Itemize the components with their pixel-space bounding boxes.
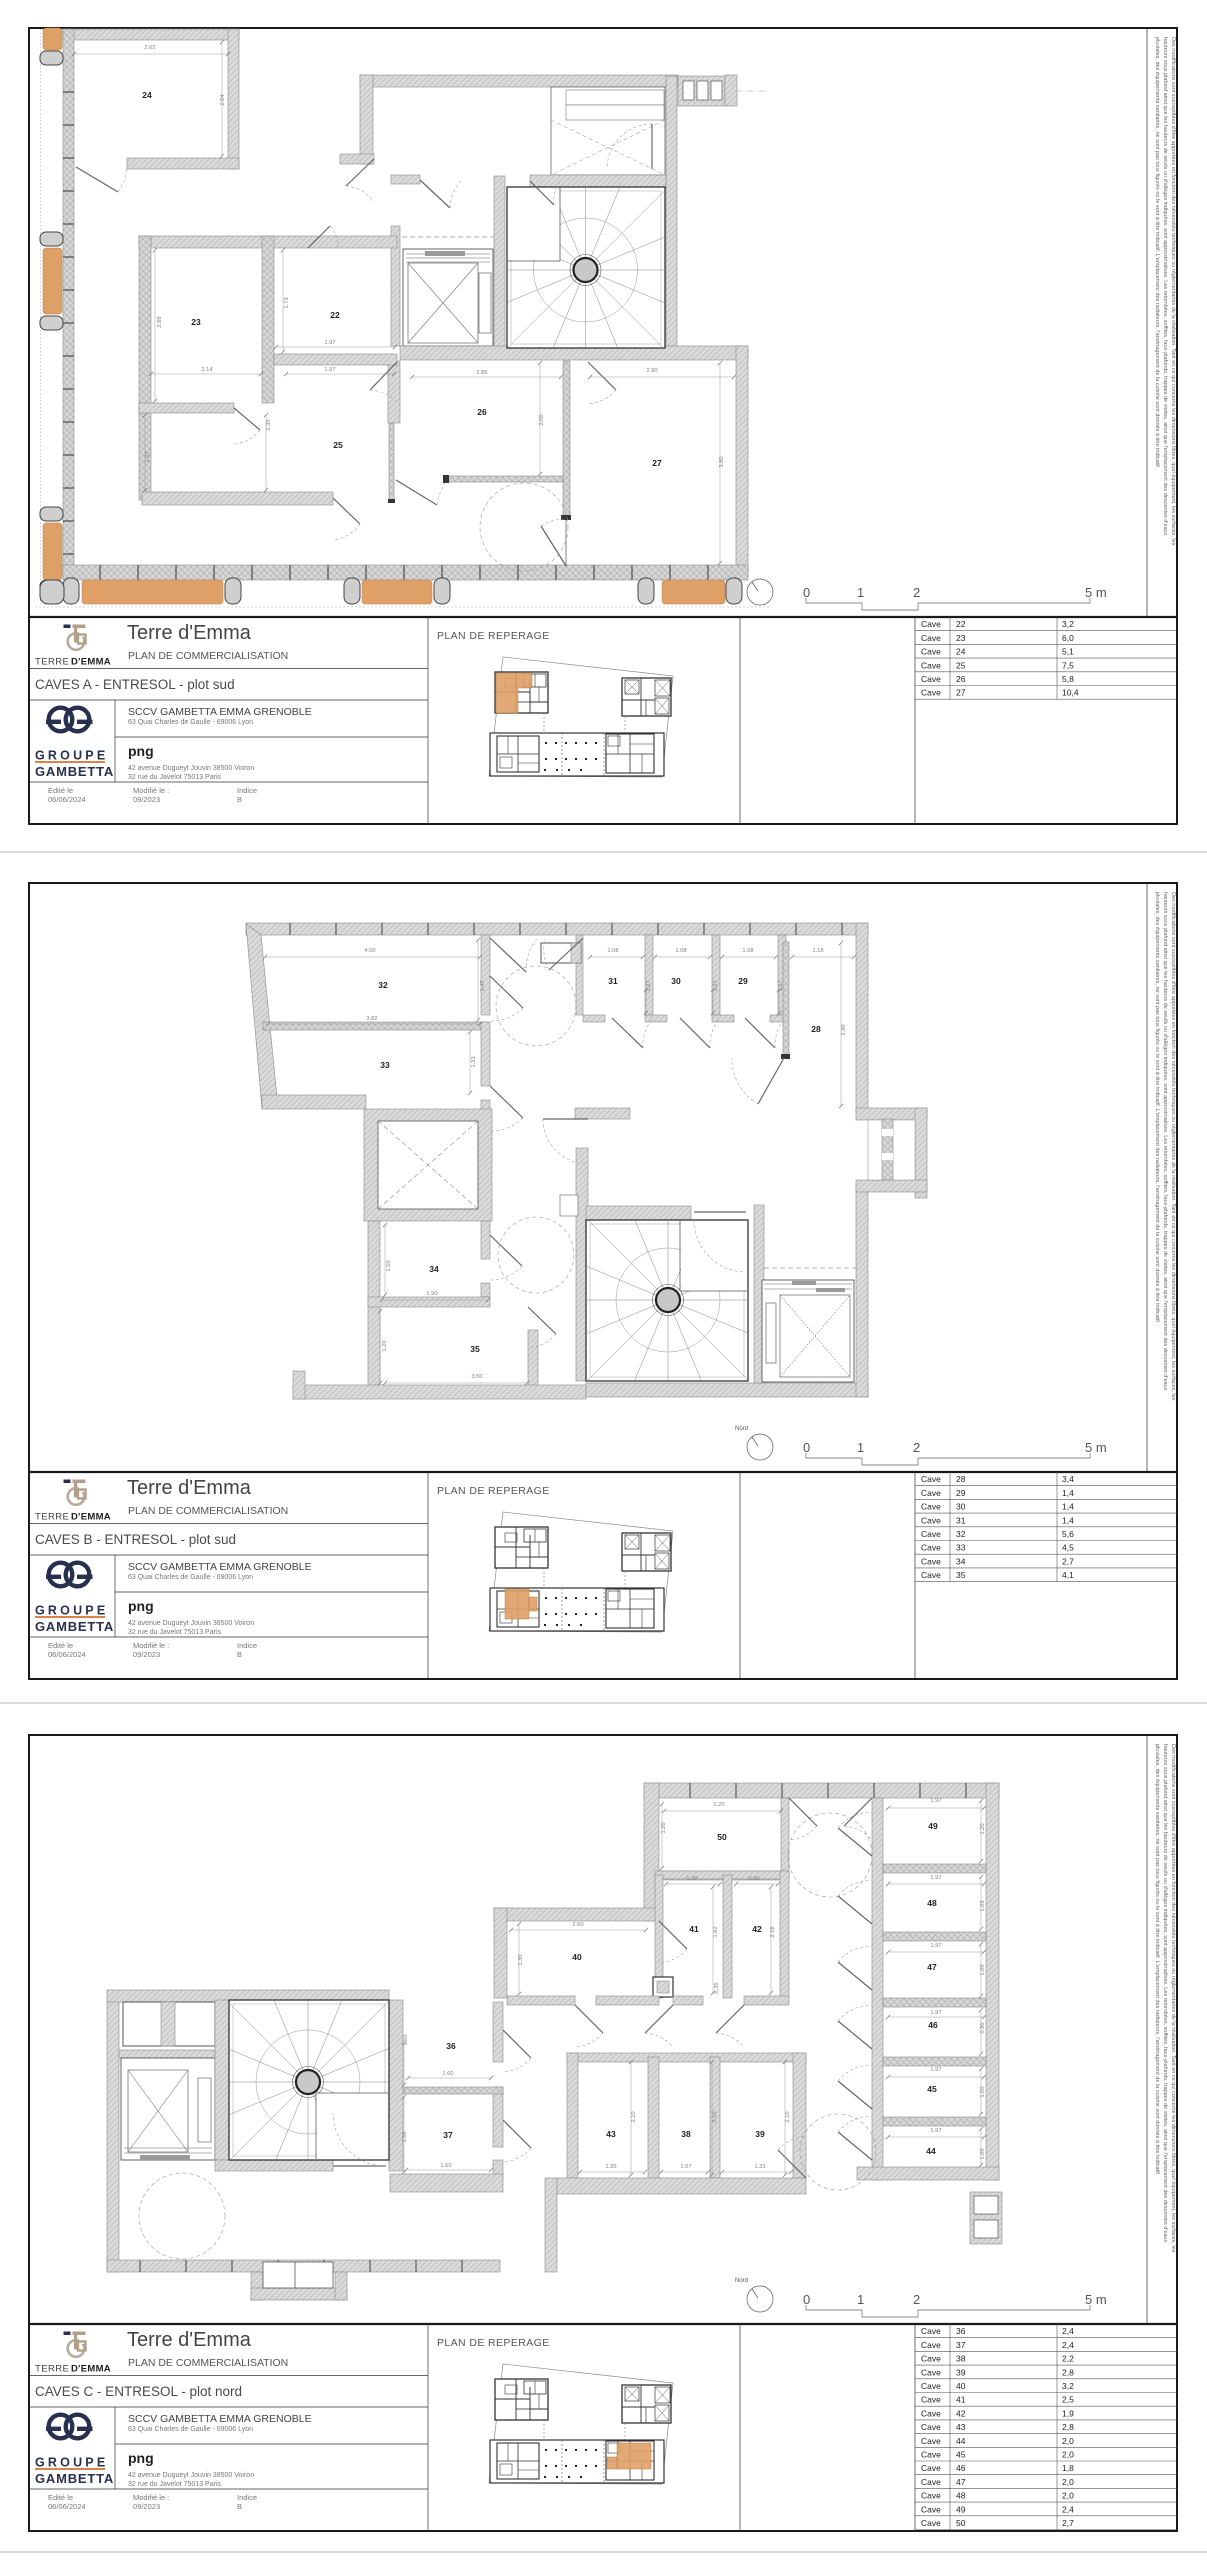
svg-text:5,1: 5,1: [1062, 647, 1074, 657]
svg-text:1.27: 1.27: [778, 980, 784, 991]
svg-text:31: 31: [956, 1515, 966, 1525]
svg-text:5,8: 5,8: [1062, 674, 1074, 684]
svg-text:GAMBETTA: GAMBETTA: [35, 1619, 114, 1634]
svg-text:27: 27: [652, 458, 662, 468]
svg-text:GROUPE: GROUPE: [35, 2456, 108, 2470]
svg-text:GROUPE: GROUPE: [35, 749, 108, 763]
svg-text:pluviales, des équipements san: pluviales, des équipements sanitaires, n…: [1154, 1744, 1160, 2176]
svg-text:5 m: 5 m: [1085, 2292, 1107, 2307]
svg-text:6,0: 6,0: [1062, 633, 1074, 643]
svg-text:1,8: 1,8: [1062, 2463, 1074, 2473]
svg-text:38: 38: [956, 2354, 966, 2364]
svg-text:Cave: Cave: [921, 2367, 941, 2377]
svg-text:0.35: 0.35: [714, 1982, 720, 1993]
svg-text:D'EMMA: D'EMMA: [71, 1512, 111, 1523]
svg-text:png: png: [128, 1598, 154, 1614]
svg-text:29: 29: [738, 976, 748, 986]
svg-text:5 m: 5 m: [1085, 585, 1107, 600]
svg-text:hauteurs sous plafond ainsi qu: hauteurs sous plafond ainsi que les haut…: [1162, 892, 1168, 1391]
svg-text:1.97: 1.97: [930, 2067, 941, 2073]
svg-text:pluviales, des équipements san: pluviales, des équipements sanitaires, n…: [1154, 37, 1160, 469]
svg-text:50: 50: [717, 1832, 727, 1842]
svg-text:24: 24: [956, 647, 966, 657]
svg-text:1.20: 1.20: [382, 1340, 388, 1351]
svg-text:4,1: 4,1: [1062, 1570, 1074, 1580]
svg-text:Cave: Cave: [921, 2504, 941, 2514]
svg-text:33: 33: [956, 1543, 966, 1553]
svg-text:png: png: [128, 2450, 154, 2466]
svg-text:Cave: Cave: [921, 688, 941, 698]
svg-text:1.97: 1.97: [930, 2010, 941, 2016]
svg-text:2,4: 2,4: [1062, 2504, 1074, 2514]
svg-text:B: B: [237, 1650, 242, 1659]
svg-text:PLAN DE REPERAGE: PLAN DE REPERAGE: [437, 1485, 550, 1497]
svg-text:2.10: 2.10: [712, 2111, 718, 2122]
svg-text:TERRE: TERRE: [35, 657, 69, 668]
svg-text:Cave: Cave: [921, 1488, 941, 1498]
svg-text:1.27: 1.27: [145, 451, 151, 462]
svg-text:1.50: 1.50: [403, 2034, 409, 2045]
svg-text:49: 49: [928, 1821, 938, 1831]
svg-text:0.90: 0.90: [748, 1876, 759, 1882]
svg-text:2,4: 2,4: [1062, 2326, 1074, 2336]
svg-text:1.20: 1.20: [980, 1823, 986, 1834]
svg-text:2: 2: [913, 1440, 920, 1455]
svg-text:Cave: Cave: [921, 2422, 941, 2432]
svg-text:1.97: 1.97: [324, 340, 335, 346]
svg-text:Terre d'Emma: Terre d'Emma: [127, 2329, 252, 2351]
svg-text:42 avenue Dugueyt Jouvin 38500: 42 avenue Dugueyt Jouvin 38500 Voiron: [128, 765, 254, 772]
svg-text:Indice: Indice: [237, 1641, 257, 1650]
svg-text:GAMBETTA: GAMBETTA: [35, 2471, 114, 2486]
svg-text:40: 40: [956, 2381, 966, 2391]
svg-text:PLAN DE REPERAGE: PLAN DE REPERAGE: [437, 630, 550, 642]
svg-text:GAMBETTA: GAMBETTA: [35, 764, 114, 779]
svg-text:Nord: Nord: [735, 2278, 748, 2284]
svg-text:1.00: 1.00: [980, 2148, 986, 2159]
svg-text:2.85: 2.85: [476, 370, 487, 376]
svg-text:3,2: 3,2: [1062, 2381, 1074, 2391]
svg-text:1.50: 1.50: [402, 2131, 408, 2142]
svg-text:32 rue du Javelot 75013 Paris: 32 rue du Javelot 75013 Paris: [128, 2481, 222, 2488]
svg-text:2.50: 2.50: [572, 1922, 583, 1928]
svg-text:63 Quai Charles de Gaulle - 69: 63 Quai Charles de Gaulle - 69006 Lyon: [128, 1574, 253, 1581]
svg-text:Cave: Cave: [921, 2477, 941, 2487]
svg-text:2.88: 2.88: [157, 316, 163, 327]
svg-text:1.20: 1.20: [661, 1822, 667, 1833]
svg-text:06/06/2024: 06/06/2024: [48, 1650, 86, 1659]
svg-text:TERRE: TERRE: [35, 1512, 69, 1523]
svg-text:37: 37: [443, 2130, 453, 2140]
svg-text:Cave: Cave: [921, 2354, 941, 2364]
svg-text:48: 48: [927, 1898, 937, 1908]
svg-text:31: 31: [608, 976, 618, 986]
svg-text:22: 22: [330, 310, 340, 320]
svg-text:7,5: 7,5: [1062, 660, 1074, 670]
svg-text:1.60: 1.60: [440, 2163, 451, 2169]
svg-text:Cave: Cave: [921, 2395, 941, 2405]
svg-text:28: 28: [956, 1474, 966, 1484]
svg-text:2: 2: [913, 585, 920, 600]
svg-text:41: 41: [956, 2395, 966, 2405]
svg-text:22: 22: [956, 619, 966, 629]
svg-text:0: 0: [803, 585, 810, 600]
svg-text:png: png: [128, 743, 154, 759]
svg-text:Nord: Nord: [735, 1426, 748, 1432]
svg-text:Cave: Cave: [921, 2463, 941, 2473]
svg-text:32 rue du Javelot 75013 Paris: 32 rue du Javelot 75013 Paris: [128, 1629, 222, 1636]
svg-text:1,4: 1,4: [1062, 1515, 1074, 1525]
svg-text:34: 34: [956, 1556, 966, 1566]
svg-text:35: 35: [470, 1344, 480, 1354]
svg-text:36: 36: [956, 2326, 966, 2336]
svg-text:1.08: 1.08: [675, 948, 686, 954]
svg-text:1.20: 1.20: [686, 1876, 697, 1882]
svg-text:45: 45: [956, 2450, 966, 2460]
svg-text:Cave: Cave: [921, 2436, 941, 2446]
svg-text:40: 40: [572, 1952, 582, 1962]
svg-text:1.00: 1.00: [980, 1964, 986, 1975]
svg-text:GROUPE: GROUPE: [35, 1604, 108, 1618]
svg-text:2.10: 2.10: [785, 2111, 791, 2122]
svg-text:Cave: Cave: [921, 2408, 941, 2418]
svg-text:2.20: 2.20: [713, 1802, 724, 1808]
svg-text:36: 36: [446, 2041, 456, 2051]
svg-text:2.16: 2.16: [770, 1926, 776, 1937]
svg-text:25: 25: [333, 440, 343, 450]
svg-text:CAVES C - ENTRESOL - plot nord: CAVES C - ENTRESOL - plot nord: [35, 2384, 242, 2399]
svg-text:48: 48: [956, 2491, 966, 2501]
svg-text:3.82: 3.82: [366, 1016, 377, 1022]
svg-text:29: 29: [956, 1488, 966, 1498]
svg-text:32 rue du Javelot 75013 Paris: 32 rue du Javelot 75013 Paris: [128, 774, 222, 781]
svg-text:Cave: Cave: [921, 2340, 941, 2350]
svg-text:46: 46: [956, 2463, 966, 2473]
svg-text:1.07: 1.07: [680, 2164, 691, 2170]
svg-text:28: 28: [811, 1024, 821, 1034]
svg-text:06/06/2024: 06/06/2024: [48, 795, 86, 804]
svg-text:09/2023: 09/2023: [133, 2502, 160, 2511]
svg-text:Cave: Cave: [921, 1570, 941, 1580]
svg-text:5,6: 5,6: [1062, 1529, 1074, 1539]
svg-text:PLAN DE COMMERCIALISATION: PLAN DE COMMERCIALISATION: [128, 2357, 288, 2369]
svg-text:63 Quai Charles de Gaulle - 69: 63 Quai Charles de Gaulle - 69006 Lyon: [128, 719, 253, 726]
svg-text:2.62: 2.62: [144, 45, 155, 51]
svg-text:Edité le: Edité le: [48, 786, 73, 795]
svg-text:30: 30: [956, 1502, 966, 1512]
svg-text:2.14: 2.14: [201, 367, 213, 373]
svg-text:4,5: 4,5: [1062, 1543, 1074, 1553]
svg-text:2.90: 2.90: [841, 1024, 847, 1035]
svg-text:30: 30: [671, 976, 681, 986]
svg-text:63 Quai Charles de Gaulle - 69: 63 Quai Charles de Gaulle - 69006 Lyon: [128, 2426, 253, 2433]
svg-text:32: 32: [956, 1529, 966, 1539]
svg-text:33: 33: [380, 1060, 390, 1070]
svg-text:10,4: 10,4: [1062, 688, 1079, 698]
svg-text:3.80: 3.80: [719, 456, 725, 467]
svg-text:Edité le: Edité le: [48, 2493, 73, 2502]
svg-text:1.97: 1.97: [930, 1875, 941, 1881]
svg-text:26: 26: [956, 674, 966, 684]
svg-text:1.50: 1.50: [386, 1260, 392, 1271]
svg-text:1.03: 1.03: [980, 1900, 986, 1911]
svg-text:1.60: 1.60: [442, 2071, 453, 2077]
svg-text:Cave: Cave: [921, 1543, 941, 1553]
svg-text:Cave: Cave: [921, 1502, 941, 1512]
svg-text:2.35: 2.35: [266, 419, 272, 430]
svg-text:38: 38: [681, 2129, 691, 2139]
svg-text:Indice: Indice: [237, 786, 257, 795]
svg-text:45: 45: [927, 2084, 937, 2094]
svg-text:1.33: 1.33: [471, 1056, 477, 1067]
svg-text:Cave: Cave: [921, 1515, 941, 1525]
svg-text:1,4: 1,4: [1062, 1502, 1074, 1512]
svg-text:Des modifications sont suscept: Des modifications sont susceptibles d'êt…: [1170, 37, 1176, 546]
svg-text:1.27: 1.27: [646, 980, 652, 991]
svg-text:06/06/2024: 06/06/2024: [48, 2502, 86, 2511]
svg-text:Modifié le :: Modifié le :: [133, 2493, 169, 2502]
svg-text:D'EMMA: D'EMMA: [71, 2364, 111, 2375]
svg-text:2.90: 2.90: [646, 368, 657, 374]
svg-text:2: 2: [913, 2292, 920, 2307]
svg-text:3,4: 3,4: [1062, 1474, 1074, 1484]
svg-text:2.04: 2.04: [220, 94, 226, 106]
svg-text:1.00: 1.00: [980, 2086, 986, 2097]
svg-text:34: 34: [429, 1264, 439, 1274]
svg-text:0: 0: [803, 1440, 810, 1455]
svg-text:4.00: 4.00: [364, 948, 375, 954]
svg-text:2,0: 2,0: [1062, 2436, 1074, 2446]
svg-text:39: 39: [956, 2367, 966, 2377]
svg-text:PLAN DE REPERAGE: PLAN DE REPERAGE: [437, 2337, 550, 2349]
svg-text:hauteurs sous plafond ainsi qu: hauteurs sous plafond ainsi que les haut…: [1162, 37, 1168, 536]
svg-text:Des modifications sont suscept: Des modifications sont susceptibles d'êt…: [1170, 892, 1176, 1401]
svg-text:1.30: 1.30: [518, 1954, 524, 1965]
svg-text:1.35: 1.35: [605, 2164, 616, 2170]
svg-text:2,0: 2,0: [1062, 2477, 1074, 2487]
svg-text:Cave: Cave: [921, 633, 941, 643]
svg-text:39: 39: [755, 2129, 765, 2139]
svg-text:23: 23: [956, 633, 966, 643]
svg-text:1.33: 1.33: [754, 2164, 765, 2170]
svg-text:1,9: 1,9: [1062, 2408, 1074, 2418]
svg-text:35: 35: [956, 1570, 966, 1580]
svg-text:Cave: Cave: [921, 2381, 941, 2391]
svg-text:Terre d'Emma: Terre d'Emma: [127, 622, 252, 644]
svg-text:Modifié le :: Modifié le :: [133, 786, 169, 795]
svg-text:46: 46: [928, 2020, 938, 2030]
svg-text:3.50: 3.50: [471, 1374, 482, 1380]
svg-text:SCCV GAMBETTA EMMA GRENOBLE: SCCV GAMBETTA EMMA GRENOBLE: [128, 1561, 312, 1573]
svg-text:Terre d'Emma: Terre d'Emma: [127, 1477, 252, 1499]
svg-text:Cave: Cave: [921, 660, 941, 670]
svg-text:09/2023: 09/2023: [133, 795, 160, 804]
svg-text:PLAN DE COMMERCIALISATION: PLAN DE COMMERCIALISATION: [128, 650, 288, 662]
svg-text:1.73: 1.73: [284, 297, 290, 308]
svg-text:PLAN DE COMMERCIALISATION: PLAN DE COMMERCIALISATION: [128, 1505, 288, 1517]
svg-text:Cave: Cave: [921, 2491, 941, 2501]
svg-text:B: B: [237, 795, 242, 804]
svg-text:Indice: Indice: [237, 2493, 257, 2502]
svg-text:1.27: 1.27: [713, 980, 719, 991]
svg-text:Cave: Cave: [921, 2326, 941, 2336]
svg-text:26: 26: [477, 407, 487, 417]
svg-text:44: 44: [956, 2436, 966, 2446]
svg-text:43: 43: [956, 2422, 966, 2432]
svg-text:47: 47: [927, 1962, 937, 1972]
svg-text:1.08: 1.08: [742, 948, 753, 954]
svg-text:1.82: 1.82: [713, 1926, 719, 1937]
svg-text:42: 42: [956, 2408, 966, 2418]
svg-text:CAVES A - ENTRESOL - plot sud: CAVES A - ENTRESOL - plot sud: [35, 677, 235, 692]
svg-text:TERRE: TERRE: [35, 2364, 69, 2375]
svg-text:1.90: 1.90: [426, 1291, 437, 1297]
svg-text:49: 49: [956, 2504, 966, 2514]
svg-text:2,8: 2,8: [1062, 2367, 1074, 2377]
svg-text:32: 32: [378, 980, 388, 990]
svg-text:42 avenue Dugueyt Jouvin 38500: 42 avenue Dugueyt Jouvin 38500 Voiron: [128, 2472, 254, 2479]
svg-text:CAVES B - ENTRESOL - plot sud: CAVES B - ENTRESOL - plot sud: [35, 1532, 236, 1547]
svg-text:2,2: 2,2: [1062, 2354, 1074, 2364]
svg-text:2,8: 2,8: [1062, 2422, 1074, 2432]
svg-text:hauteurs sous plafond ainsi qu: hauteurs sous plafond ainsi que les haut…: [1162, 1744, 1168, 2243]
svg-text:Edité le: Edité le: [48, 1641, 73, 1650]
svg-text:1.18: 1.18: [812, 948, 823, 954]
svg-text:47: 47: [956, 2477, 966, 2487]
svg-text:1.97: 1.97: [930, 1943, 941, 1949]
svg-text:1.97: 1.97: [324, 367, 335, 373]
svg-text:5 m: 5 m: [1085, 1440, 1107, 1455]
svg-text:1: 1: [857, 585, 864, 600]
svg-text:25: 25: [956, 660, 966, 670]
svg-text:23: 23: [191, 317, 201, 327]
svg-text:0: 0: [803, 2292, 810, 2307]
svg-text:43: 43: [606, 2129, 616, 2139]
svg-text:42: 42: [752, 1924, 762, 1934]
svg-text:Cave: Cave: [921, 1529, 941, 1539]
svg-text:2,7: 2,7: [1062, 2518, 1074, 2528]
svg-text:3,2: 3,2: [1062, 619, 1074, 629]
svg-text:0.90: 0.90: [980, 2022, 986, 2033]
svg-text:1: 1: [857, 2292, 864, 2307]
svg-text:2,7: 2,7: [1062, 1556, 1074, 1566]
svg-text:SCCV GAMBETTA EMMA GRENOBLE: SCCV GAMBETTA EMMA GRENOBLE: [128, 2413, 312, 2425]
svg-text:1: 1: [857, 1440, 864, 1455]
svg-text:2,0: 2,0: [1062, 2450, 1074, 2460]
svg-text:2,0: 2,0: [1062, 2491, 1074, 2501]
svg-text:Cave: Cave: [921, 619, 941, 629]
svg-text:42 avenue Dugueyt Jouvin 38500: 42 avenue Dugueyt Jouvin 38500 Voiron: [128, 1620, 254, 1627]
svg-text:pluviales, des équipements san: pluviales, des équipements sanitaires, n…: [1154, 892, 1160, 1324]
svg-text:SCCV GAMBETTA EMMA GRENOBLE: SCCV GAMBETTA EMMA GRENOBLE: [128, 706, 312, 718]
svg-text:2.10: 2.10: [631, 2111, 637, 2122]
svg-text:2.00: 2.00: [539, 414, 545, 425]
svg-text:1.08: 1.08: [607, 948, 618, 954]
svg-text:B: B: [237, 2502, 242, 2511]
svg-text:50: 50: [956, 2518, 966, 2528]
svg-text:37: 37: [956, 2340, 966, 2350]
svg-text:Modifié le :: Modifié le :: [133, 1641, 169, 1650]
svg-text:1,4: 1,4: [1062, 1488, 1074, 1498]
svg-text:44: 44: [926, 2146, 936, 2156]
svg-text:09/2023: 09/2023: [133, 1650, 160, 1659]
svg-text:41: 41: [689, 1924, 699, 1934]
svg-text:24: 24: [142, 90, 152, 100]
svg-text:D'EMMA: D'EMMA: [71, 657, 111, 668]
svg-text:Cave: Cave: [921, 647, 941, 657]
svg-text:2,5: 2,5: [1062, 2395, 1074, 2405]
svg-text:2,4: 2,4: [1062, 2340, 1074, 2350]
svg-text:Des modifications sont suscept: Des modifications sont susceptibles d'êt…: [1170, 1744, 1176, 2253]
svg-text:1.97: 1.97: [930, 2128, 941, 2134]
svg-text:Cave: Cave: [921, 674, 941, 684]
svg-text:27: 27: [956, 688, 966, 698]
svg-text:1.47: 1.47: [480, 980, 486, 991]
svg-text:Cave: Cave: [921, 2518, 941, 2528]
svg-text:Cave: Cave: [921, 1556, 941, 1566]
svg-text:1.97: 1.97: [930, 1798, 941, 1804]
svg-text:Cave: Cave: [921, 2450, 941, 2460]
svg-text:Cave: Cave: [921, 1474, 941, 1484]
